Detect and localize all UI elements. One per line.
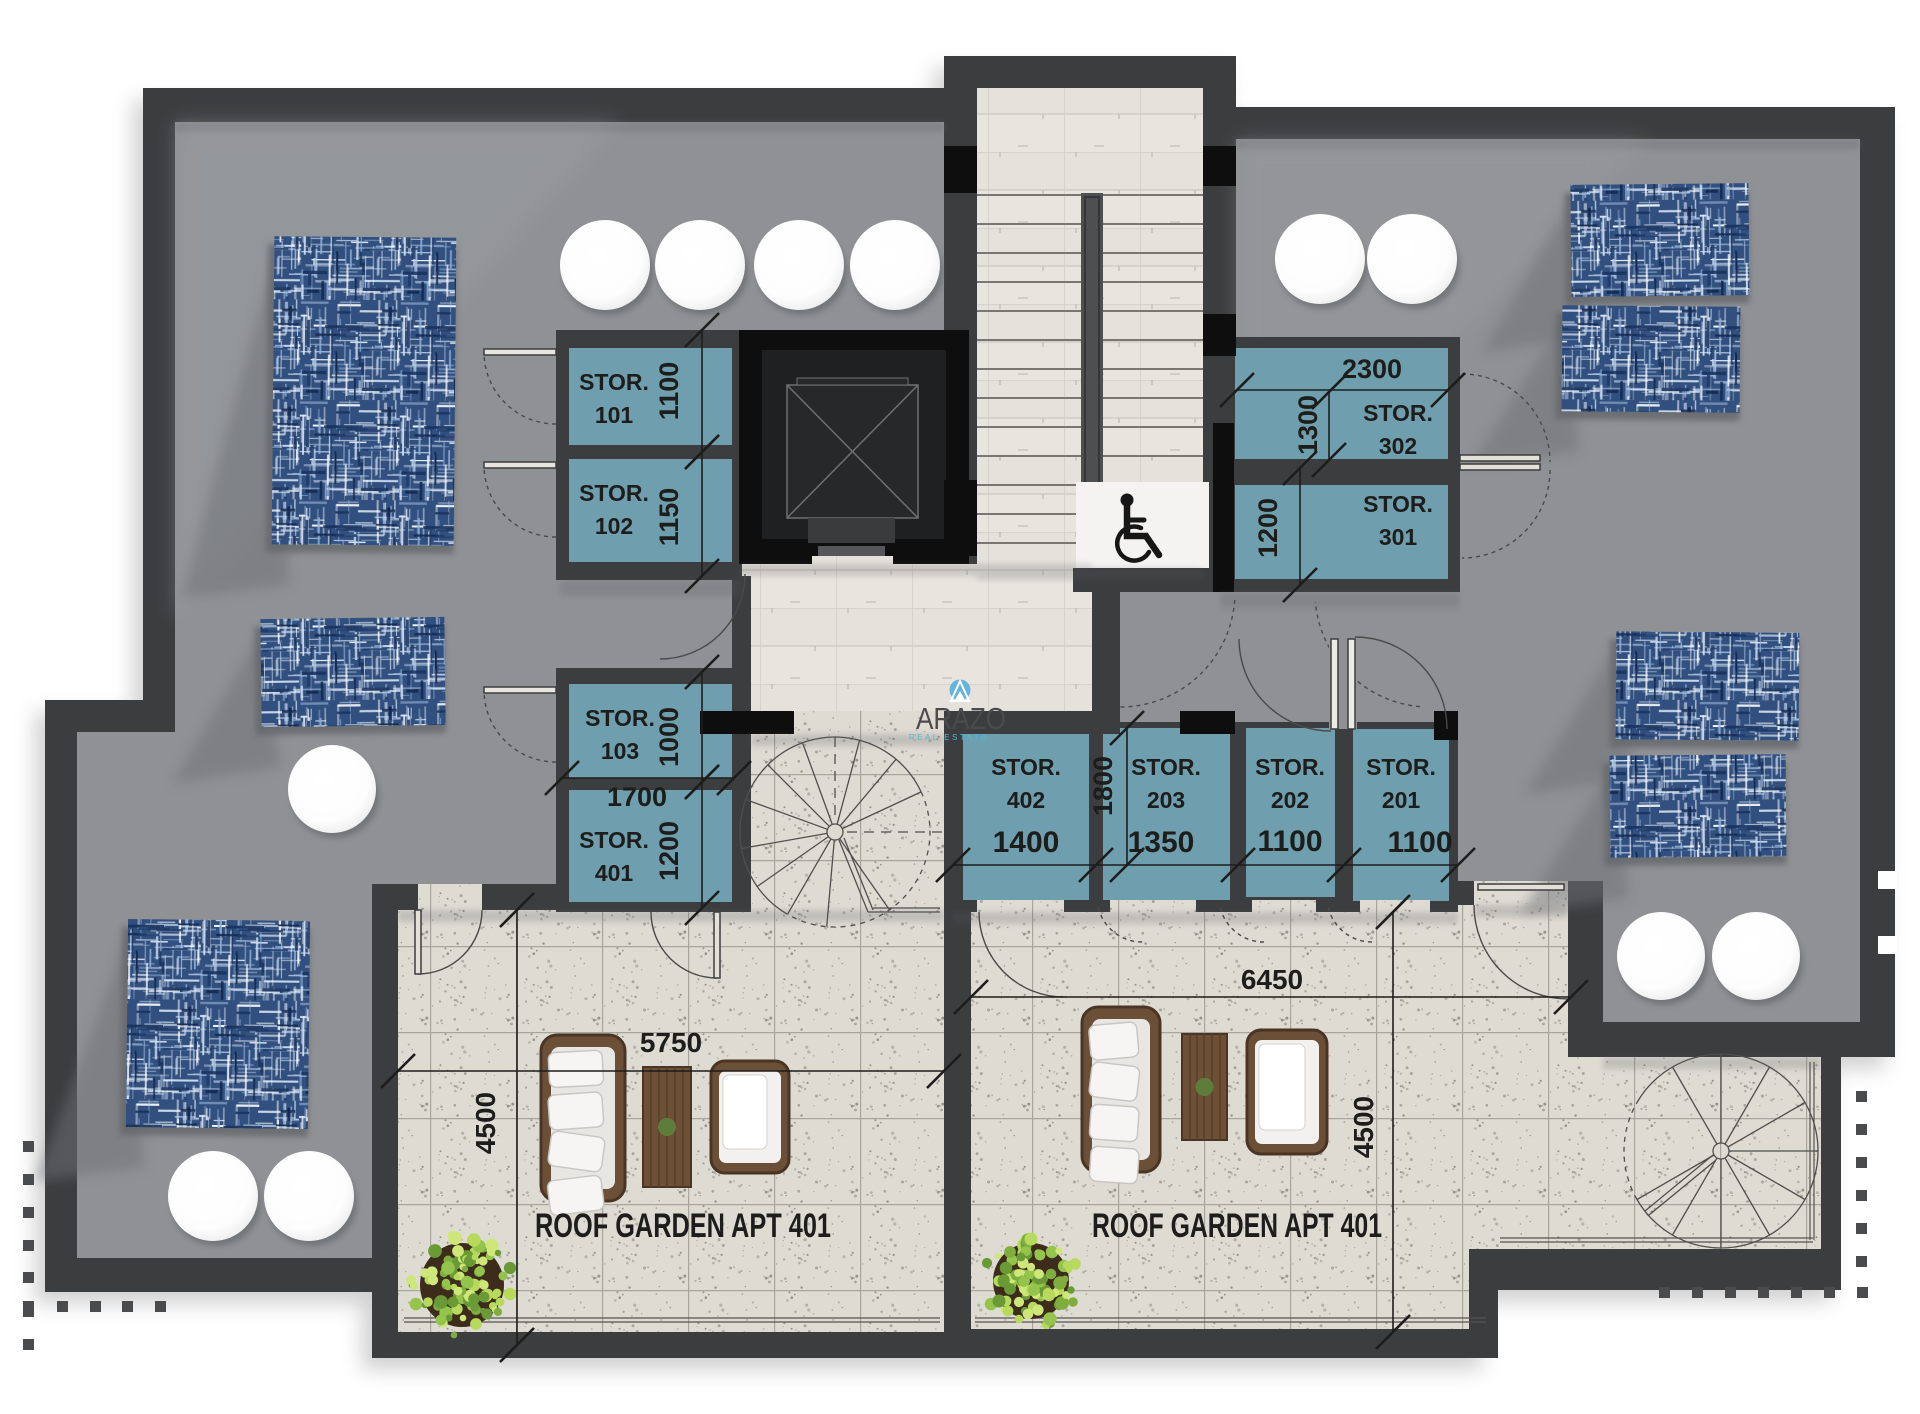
- svg-text:STOR.: STOR.: [579, 480, 649, 506]
- svg-text:1400: 1400: [993, 826, 1060, 859]
- svg-text:1100: 1100: [654, 362, 684, 421]
- svg-text:ARAZO: ARAZO: [916, 701, 1006, 736]
- svg-text:5750: 5750: [640, 1027, 702, 1058]
- svg-text:102: 102: [595, 513, 633, 539]
- svg-text:ROOF GARDEN APT 401: ROOF GARDEN APT 401: [535, 1207, 831, 1245]
- svg-text:STOR.: STOR.: [1131, 754, 1201, 780]
- svg-text:302: 302: [1379, 433, 1417, 459]
- svg-text:2300: 2300: [1342, 354, 1402, 384]
- svg-text:1100: 1100: [1257, 825, 1322, 858]
- svg-text:1700: 1700: [607, 782, 667, 812]
- svg-text:103: 103: [601, 738, 639, 764]
- svg-text:1800: 1800: [1088, 756, 1118, 816]
- svg-text:4500: 4500: [470, 1092, 501, 1154]
- svg-text:1100: 1100: [1387, 826, 1452, 859]
- svg-text:1300: 1300: [1293, 395, 1323, 455]
- svg-text:STOR.: STOR.: [1255, 754, 1325, 780]
- svg-text:ROOF GARDEN APT 401: ROOF GARDEN APT 401: [1092, 1207, 1382, 1245]
- svg-text:REAL ESTATE: REAL ESTATE: [909, 733, 989, 742]
- svg-text:1200: 1200: [1253, 498, 1283, 558]
- svg-text:6450: 6450: [1241, 964, 1303, 995]
- svg-text:301: 301: [1379, 524, 1418, 550]
- svg-text:4500: 4500: [1348, 1096, 1379, 1158]
- svg-text:201: 201: [1382, 787, 1421, 813]
- svg-text:1150: 1150: [654, 488, 684, 547]
- svg-text:STOR.: STOR.: [1366, 754, 1436, 780]
- svg-text:STOR.: STOR.: [579, 827, 649, 853]
- svg-text:STOR.: STOR.: [1363, 400, 1433, 426]
- svg-text:STOR.: STOR.: [585, 705, 655, 731]
- svg-text:1350: 1350: [1128, 826, 1195, 859]
- svg-text:STOR.: STOR.: [579, 369, 649, 395]
- svg-text:202: 202: [1271, 787, 1309, 813]
- svg-text:402: 402: [1007, 787, 1045, 813]
- svg-text:203: 203: [1147, 787, 1185, 813]
- svg-text:STOR.: STOR.: [1363, 491, 1433, 517]
- svg-text:STOR.: STOR.: [991, 754, 1061, 780]
- svg-text:1200: 1200: [654, 821, 684, 881]
- svg-text:1000: 1000: [654, 707, 684, 767]
- svg-text:401: 401: [595, 860, 634, 886]
- svg-text:101: 101: [595, 402, 634, 428]
